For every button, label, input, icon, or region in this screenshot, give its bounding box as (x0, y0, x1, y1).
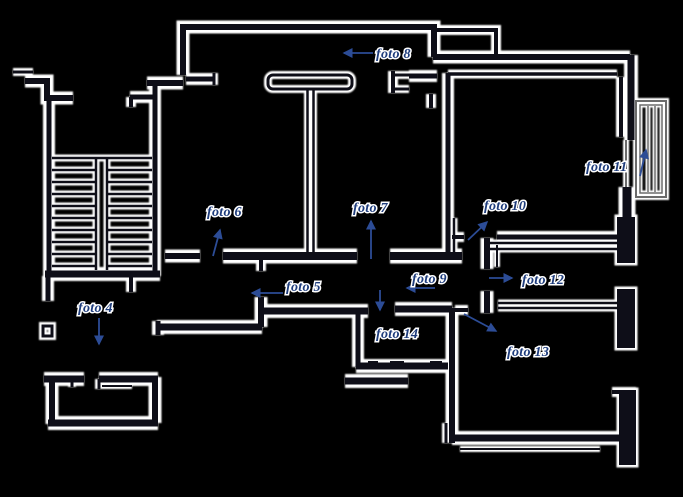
stairwell (43, 84, 160, 336)
foto-5-label: foto 5 (286, 280, 321, 295)
living-room-top-right-walls (433, 55, 631, 237)
center-rooms-walls (165, 73, 462, 271)
foto-12-label: foto 12 (522, 273, 564, 288)
stairwell (43, 84, 160, 336)
living-room-top-right-walls (433, 55, 631, 237)
wall-segment (619, 390, 636, 465)
balcony-right (636, 101, 666, 197)
wall-segment (25, 81, 73, 98)
balcony-bottom-left (44, 377, 158, 424)
duct-shaft (43, 326, 52, 336)
wall-segment (617, 217, 635, 263)
foto-11-label: foto 11 (586, 160, 627, 175)
foto-6-label: foto 6 (207, 205, 242, 220)
floor-plan-svg: foto 4 foto 5 foto 6 foto 7 foto 8 foto … (0, 0, 683, 497)
foto-6-arrow-icon (213, 230, 220, 256)
foto-10-arrow-icon (468, 222, 487, 240)
foto-14-label: foto 14 (376, 327, 418, 342)
wall-segment (640, 105, 662, 193)
foto-13-arrow-icon (464, 314, 496, 331)
foto-8-label: foto 8 (376, 47, 411, 62)
floor-plan-canvas: foto 4 foto 5 foto 6 foto 7 foto 8 foto … (0, 0, 683, 497)
foto-13-label: foto 13 (507, 345, 549, 360)
vestibule-14-walls (345, 309, 452, 381)
wall-segment (640, 105, 662, 193)
foto-4-label: foto 4 (78, 301, 113, 316)
room-13-walls (446, 308, 636, 465)
wall-segment (617, 289, 635, 348)
foto-10-label: foto 10 (484, 199, 526, 214)
foto-7-label: foto 7 (353, 201, 389, 216)
floor-plan-walls-halo (13, 27, 666, 465)
foto-9-label: foto 9 (412, 272, 447, 287)
stair-treads (52, 158, 152, 270)
wall-segment (268, 75, 352, 89)
